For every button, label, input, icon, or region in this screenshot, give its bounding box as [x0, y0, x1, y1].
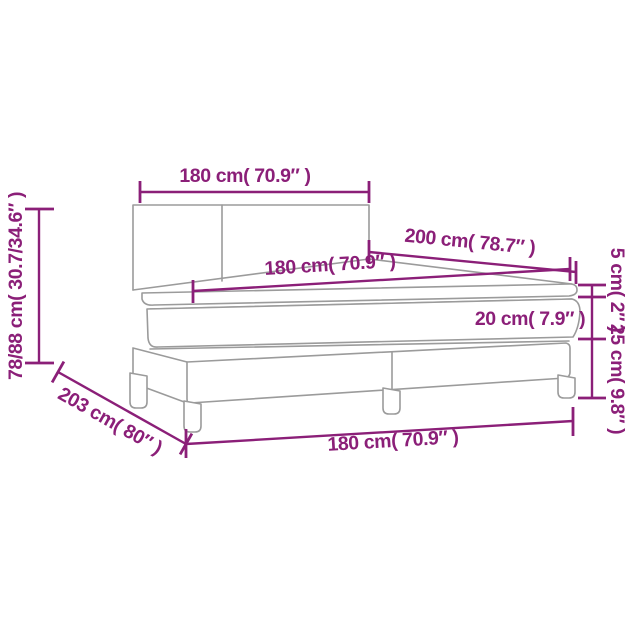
dim-bed-length-label: 200 cm( 78.7″ ) — [404, 225, 537, 259]
bed-leg-front-middle — [383, 388, 400, 414]
bed-leg-front-right — [558, 375, 575, 398]
dim-bed-length-line — [369, 252, 576, 272]
box-spring-base — [187, 343, 570, 403]
dim-headboard-width-label: 180 cm( 70.9″ ) — [179, 165, 310, 187]
dim-floor-length-label: 203 cm( 80″ ) — [54, 383, 166, 459]
diagram-canvas: 180 cm( 70.9″ ) 78/88 cm( 30.7/34.6″ ) 2… — [0, 0, 640, 640]
dim-mattress-width-label: 180 cm( 70.9″ ) — [264, 250, 396, 280]
dim-base-width-label: 180 cm( 70.9″ ) — [327, 426, 459, 456]
dim-floor-length-tick-left — [52, 362, 64, 383]
dim-mattress-thickness-label: 20 cm( 7.9″ ) — [475, 308, 585, 330]
dim-overall-height-label: 78/88 cm( 30.7/34.6″ ) — [5, 192, 27, 380]
headboard — [133, 205, 369, 290]
bed-leg-back-left — [130, 373, 147, 408]
bed-leg-front-left — [184, 401, 201, 432]
dim-topper-thickness-label: 5 cm( 2″ ) — [606, 248, 628, 332]
dim-base-height-label: 25 cm( 9.8″ ) — [606, 324, 628, 434]
bed-dimension-diagram: 180 cm( 70.9″ ) 78/88 cm( 30.7/34.6″ ) 2… — [0, 0, 640, 640]
